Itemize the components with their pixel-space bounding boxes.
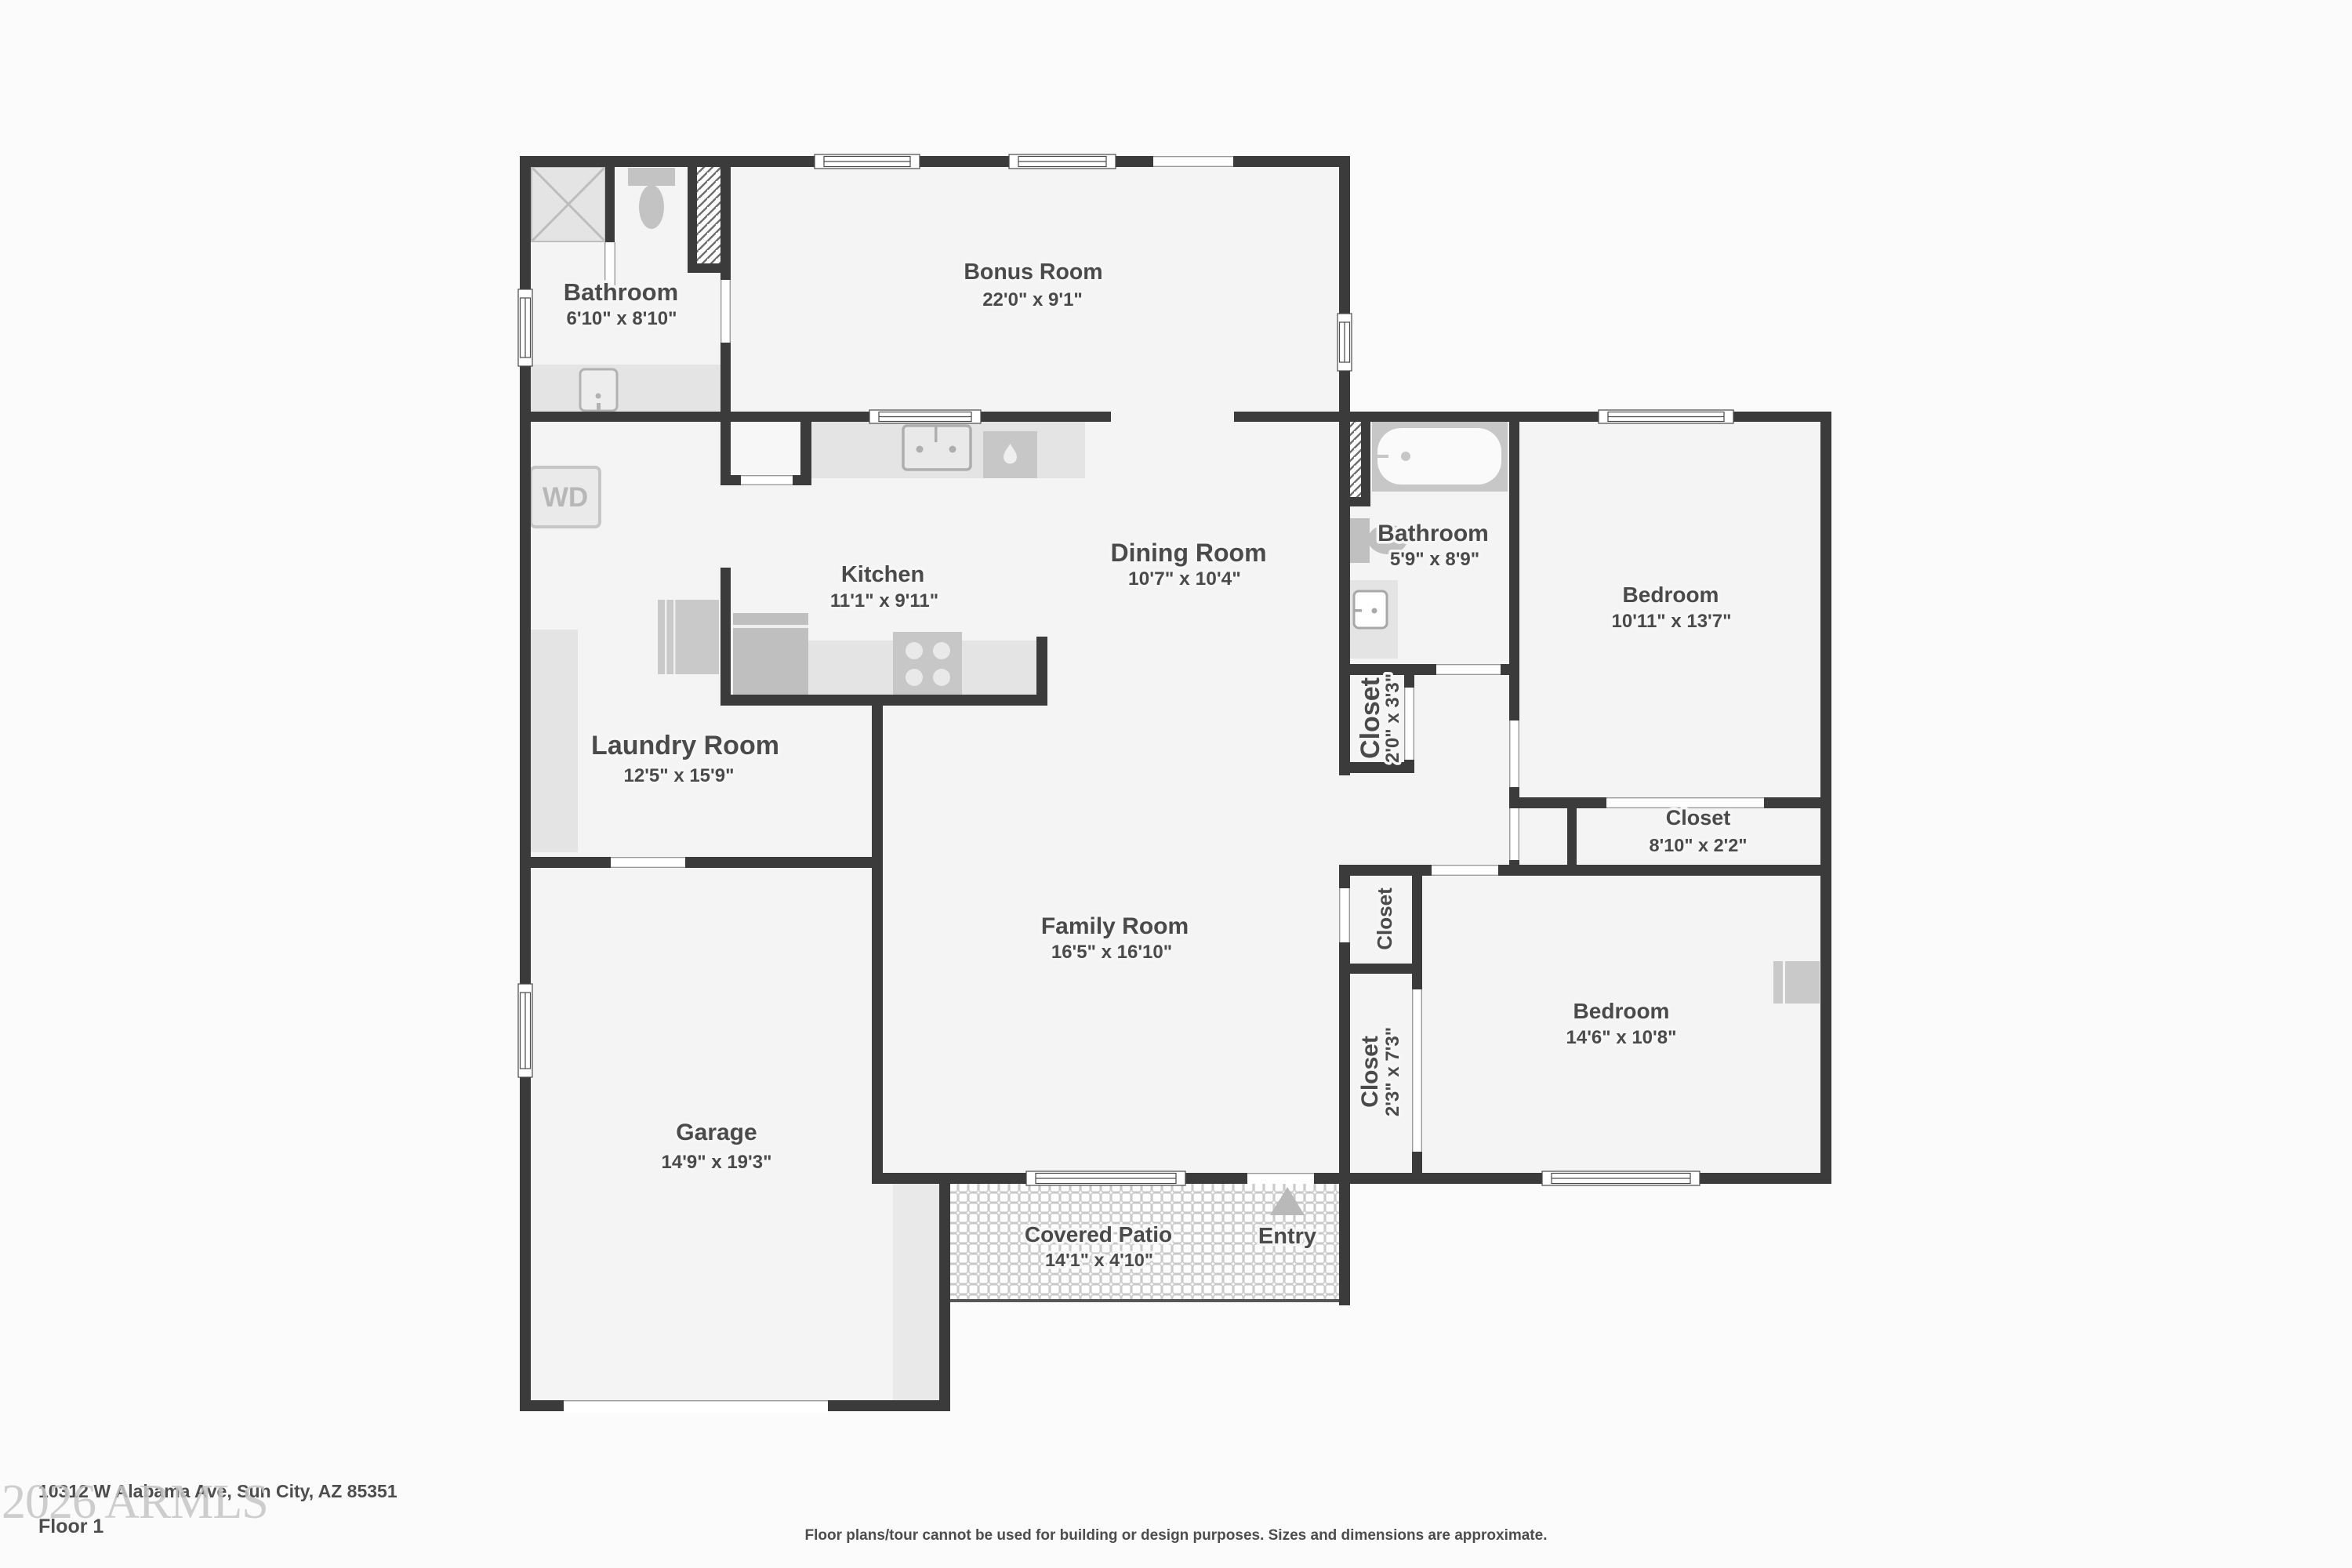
svg-text:2'3" x 7'3": 2'3" x 7'3": [1382, 1027, 1403, 1116]
svg-text:14'9" x 19'3": 14'9" x 19'3": [662, 1152, 772, 1173]
svg-text:Kitchen: Kitchen: [841, 562, 924, 587]
svg-text:WD: WD: [543, 482, 588, 513]
svg-text:Bedroom: Bedroom: [1623, 583, 1719, 607]
svg-text:11'1" x 9'11": 11'1" x 9'11": [830, 590, 938, 612]
svg-text:Closet: Closet: [1356, 677, 1385, 759]
svg-text:Floor plans/tour cannot be use: Floor plans/tour cannot be used for buil…: [805, 1527, 1548, 1544]
svg-text:14'6" x 10'8": 14'6" x 10'8": [1566, 1027, 1677, 1048]
svg-text:Closet: Closet: [1357, 1036, 1383, 1108]
svg-text:2'0" x 3'3": 2'0" x 3'3": [1382, 673, 1403, 763]
svg-text:22'0" x 9'1": 22'0" x 9'1": [982, 289, 1083, 310]
svg-text:Entry: Entry: [1258, 1224, 1316, 1249]
svg-text:8'10" x 2'2": 8'10" x 2'2": [1650, 835, 1748, 855]
svg-text:10'11" x 13'7": 10'11" x 13'7": [1612, 611, 1732, 632]
svg-text:Garage: Garage: [676, 1120, 757, 1145]
svg-text:Closet: Closet: [1666, 806, 1731, 829]
svg-text:14'1" x 4'10": 14'1" x 4'10": [1045, 1250, 1153, 1270]
svg-text:12'5" x 15'9": 12'5" x 15'9": [624, 765, 735, 786]
svg-text:6'10" x 8'10": 6'10" x 8'10": [567, 308, 677, 329]
svg-text:Floor 1: Floor 1: [38, 1515, 103, 1537]
svg-text:Laundry Room: Laundry Room: [591, 731, 779, 760]
svg-text:Bathroom: Bathroom: [1377, 521, 1489, 546]
svg-text:Covered Patio: Covered Patio: [1025, 1222, 1172, 1247]
svg-text:Closet: Closet: [1373, 887, 1396, 950]
svg-text:Bathroom: Bathroom: [564, 278, 678, 306]
svg-text:16'5" x 16'10": 16'5" x 16'10": [1051, 942, 1172, 963]
svg-text:Bonus Room: Bonus Room: [964, 260, 1102, 285]
svg-text:Dining Room: Dining Room: [1110, 539, 1266, 567]
svg-text:Bedroom: Bedroom: [1573, 999, 1670, 1023]
svg-text:Family Room: Family Room: [1041, 913, 1189, 939]
svg-text:10'7" x 10'4": 10'7" x 10'4": [1128, 568, 1241, 590]
svg-text:5'9" x 8'9": 5'9" x 8'9": [1390, 549, 1479, 570]
